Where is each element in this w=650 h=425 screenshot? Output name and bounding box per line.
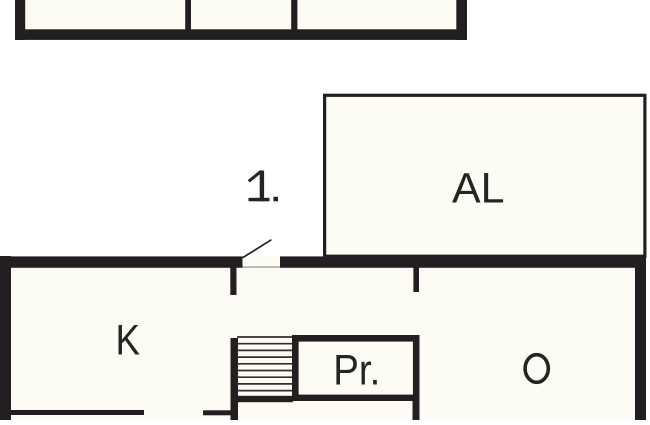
svg-text:Pr.: Pr.	[333, 347, 380, 394]
svg-text:K: K	[116, 316, 141, 364]
svg-text:AL: AL	[452, 165, 505, 212]
